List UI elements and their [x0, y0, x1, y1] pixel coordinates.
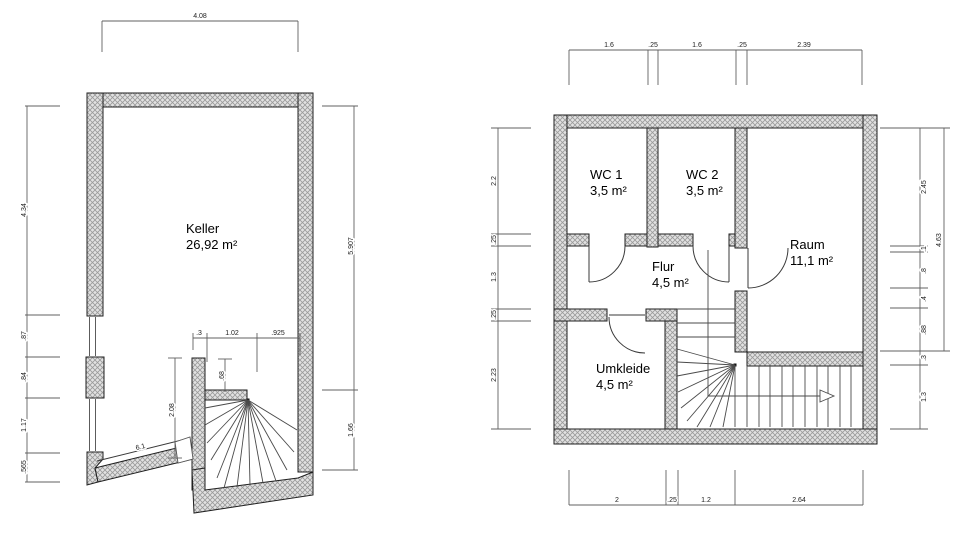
dim-label: 2.23 — [491, 368, 498, 382]
room-area: 4,5 m² — [596, 377, 634, 392]
dim-label: 1.6 — [604, 42, 614, 49]
keller-winder-stair — [205, 399, 297, 489]
dim-label: 6.1 — [135, 443, 146, 452]
walk-direction-arrow — [820, 390, 834, 402]
door-wc1 — [589, 246, 625, 282]
dim-label: .3 — [196, 330, 202, 337]
floorplan-canvas: 4.08 4.34 .87 .84 1.17 .565 5.907 1.66 — [0, 0, 960, 538]
dim-label: .87 — [21, 331, 28, 341]
dim-label: .88 — [921, 325, 928, 335]
room-name: Umkleide — [596, 361, 650, 376]
wall-wc2-raum-upper — [735, 128, 747, 248]
room-area: 3,5 m² — [590, 183, 628, 198]
wall-top — [87, 93, 313, 107]
room-area: 4,5 m² — [652, 275, 690, 290]
dim-label: .25 — [491, 310, 498, 320]
wall-umkleide-a — [554, 309, 607, 321]
dim-label: 1.2 — [701, 497, 711, 504]
wall-left — [554, 115, 567, 444]
dim-label: .3 — [921, 355, 928, 361]
dim-label: .925 — [271, 330, 285, 337]
dim-label: .565 — [21, 460, 28, 474]
dim-label: 1.3 — [491, 272, 498, 282]
room-area: 11,1 m² — [790, 253, 834, 268]
dim-label: .4 — [921, 296, 928, 302]
wall-right — [863, 115, 877, 444]
room-name: WC 1 — [590, 167, 623, 182]
ramp-landing — [175, 437, 193, 463]
dim-label: 4.34 — [21, 203, 28, 217]
upper-floor-plan: 1.6 .25 1.6 .25 2.39 2.2 .25 1.3 .25 2.2… — [491, 42, 950, 505]
wall-stair-umkleide — [665, 321, 677, 429]
dim-label: 1.17 — [21, 418, 28, 432]
door-wc2 — [693, 246, 729, 282]
dim-label: .68 — [219, 371, 226, 381]
wall-stair-top — [205, 390, 247, 400]
keller-room-label: Keller 26,92 m² — [186, 221, 238, 252]
room-area: 26,92 m² — [186, 237, 238, 252]
wall-raum-flur-lower — [735, 291, 747, 352]
dim-label: .25 — [491, 235, 498, 245]
door-umkleide — [609, 315, 645, 353]
door-raum — [748, 248, 788, 288]
dim-label: .8 — [921, 268, 928, 274]
room-name: Flur — [652, 259, 675, 274]
floorplan-page: 4.08 4.34 .87 .84 1.17 .565 5.907 1.66 — [0, 0, 960, 538]
dim-label: 4.08 — [193, 13, 207, 20]
room-area: 3,5 m² — [686, 183, 724, 198]
wall-left-upper — [87, 93, 103, 316]
wall-right — [298, 93, 313, 472]
dim-label: .25 — [737, 42, 747, 49]
dim-label: 1.6 — [692, 42, 702, 49]
dim-label: 2.08 — [169, 403, 176, 417]
dim-label: 2.45 — [921, 180, 928, 194]
keller-walls — [86, 93, 313, 513]
room-name: Raum — [790, 237, 825, 252]
dim-label: 2.2 — [491, 176, 498, 186]
upper-stair — [677, 250, 851, 427]
dim-label: 2.64 — [792, 497, 806, 504]
wall-under-raum — [747, 352, 863, 366]
dim-label: 1.3 — [921, 392, 928, 402]
dim-label: 2 — [615, 497, 619, 504]
wall-top — [554, 115, 877, 128]
dim-label: .1 — [921, 246, 928, 252]
room-name: WC 2 — [686, 167, 719, 182]
dim-label: 1.66 — [348, 423, 355, 437]
wall-bottom-band — [192, 468, 313, 513]
keller-plan: 4.08 4.34 .87 .84 1.17 .565 5.907 1.66 — [21, 13, 358, 513]
dim-label: .25 — [667, 497, 677, 504]
wall-bottom — [554, 429, 877, 444]
room-name: Keller — [186, 221, 220, 236]
wall-left-pier — [86, 357, 104, 398]
dim-label: 4.63 — [936, 233, 943, 247]
wall-under-wc-c — [658, 234, 693, 246]
stair-walk-line — [708, 250, 834, 402]
dim-label: 2.39 — [797, 42, 811, 49]
wall-wc-divider — [647, 128, 658, 247]
dim-label: .84 — [21, 372, 28, 382]
dim-label: 1.02 — [225, 330, 239, 337]
wall-under-wc-d — [729, 234, 735, 246]
dim-label: .25 — [648, 42, 658, 49]
wall-under-wc-a — [567, 234, 589, 246]
dim-label: 5.907 — [348, 237, 355, 255]
wall-under-wc-b — [625, 234, 647, 246]
wall-umkleide-b — [646, 309, 677, 321]
